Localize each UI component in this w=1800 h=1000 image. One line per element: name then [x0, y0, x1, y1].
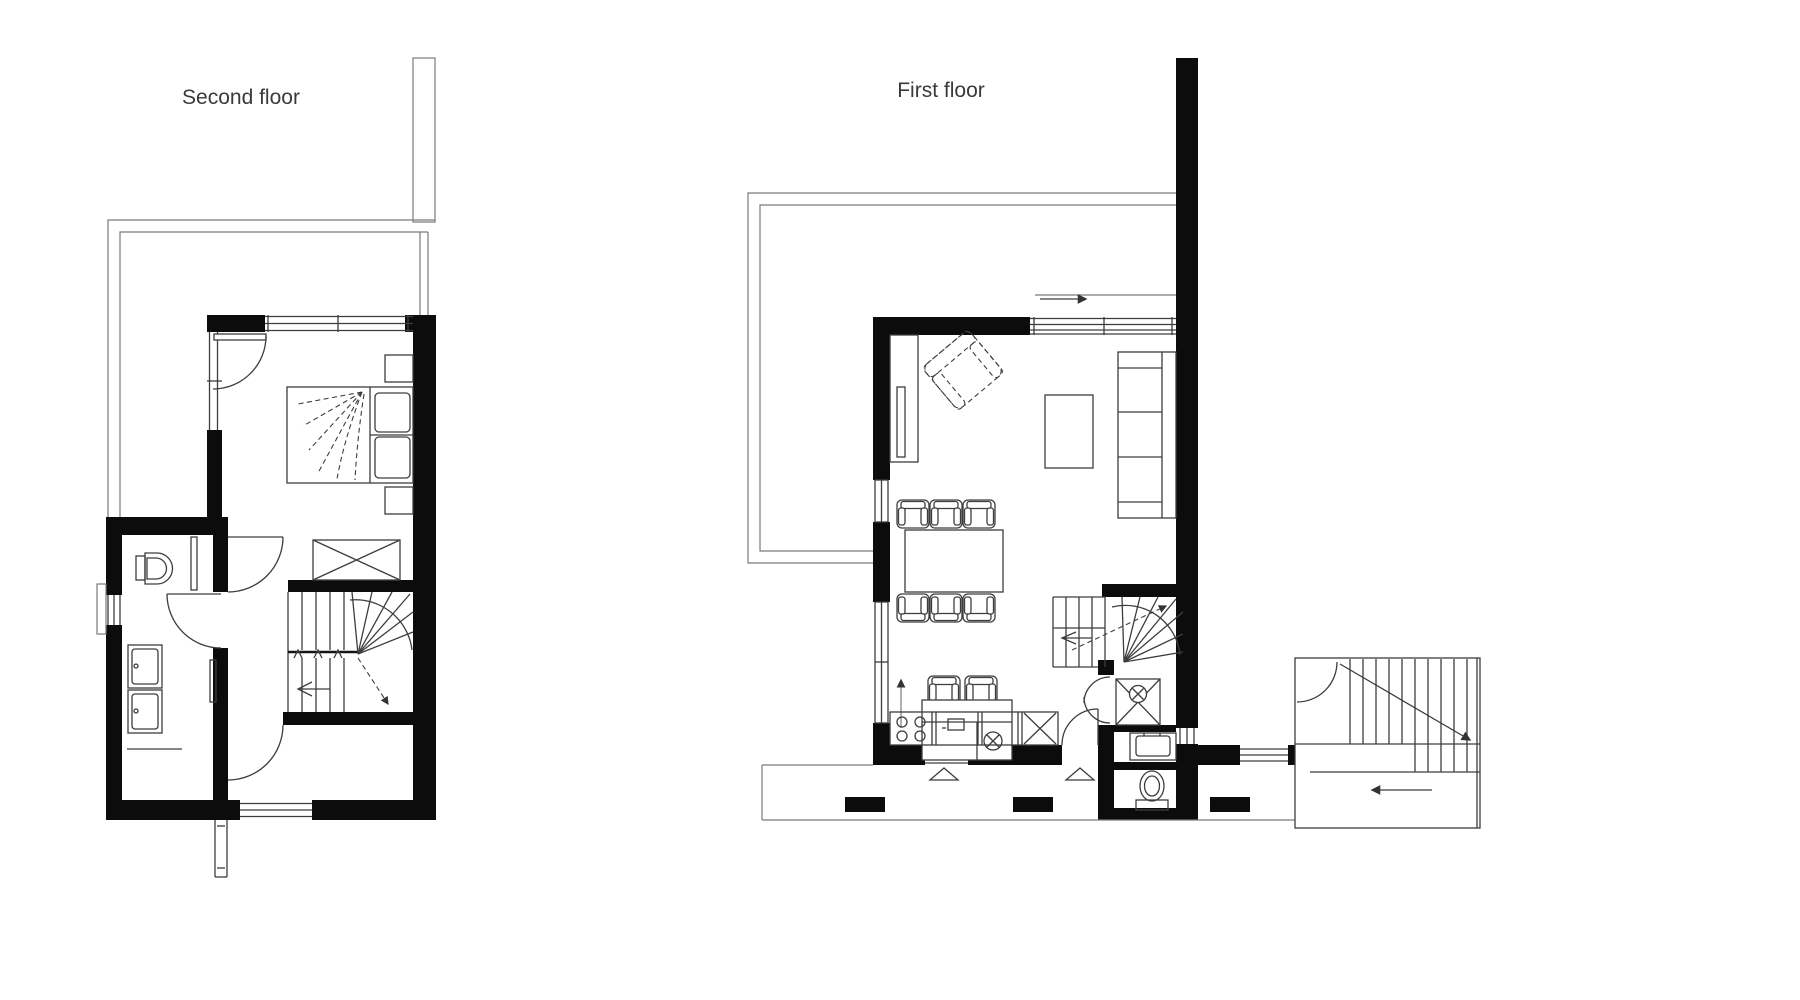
pillow: [375, 393, 410, 432]
dining-chair: [897, 500, 929, 528]
living-room-top-window: [1030, 295, 1176, 335]
terrace-outline: [108, 220, 435, 518]
winder-treads: [1112, 597, 1183, 662]
stair-direction-arrow: [298, 658, 388, 704]
wardrobe-cross: [313, 540, 400, 580]
bedroom: [210, 355, 413, 702]
nightstand: [385, 355, 413, 382]
closet: [890, 335, 918, 462]
dining-chair: [963, 594, 995, 622]
duvet-fold-lines: [298, 392, 364, 480]
windows: [97, 315, 413, 877]
bifold-door: [1084, 677, 1110, 723]
double-washbasin-icon: [127, 645, 182, 749]
lower-room-door: [228, 725, 283, 780]
second-floor-label: Second floor: [182, 86, 300, 109]
dining-chair: [963, 500, 995, 528]
dining-table: [905, 530, 1003, 592]
second-floor-plan: [97, 58, 436, 877]
radiator: [897, 387, 905, 457]
first-floor-plan: [748, 58, 1480, 828]
lower-room-window: [240, 804, 312, 817]
living-room: [890, 329, 1176, 518]
lower-flight: [1310, 744, 1480, 790]
pillow: [375, 437, 410, 478]
porch: [762, 765, 1295, 820]
dining-chair: [897, 594, 929, 622]
entrance-triangle: [930, 768, 958, 780]
first-floor-label: First floor: [897, 79, 985, 102]
wc-room: [1136, 771, 1168, 810]
upper-flight: [1295, 659, 1480, 744]
porch-post: [1210, 797, 1250, 812]
washbasin-window: [1180, 728, 1194, 744]
chimney: [413, 58, 435, 222]
dishwasher-cross: [1024, 713, 1056, 744]
entrance-triangle: [1066, 768, 1094, 780]
bedroom-left-window: [207, 332, 222, 430]
porch-post: [845, 797, 885, 812]
winder-staircase: [1053, 597, 1183, 667]
hall-door: [228, 537, 283, 592]
shower-icon: [1116, 679, 1160, 725]
armchair: [922, 329, 1004, 410]
sofa: [1118, 352, 1176, 518]
coffee-table: [1045, 395, 1093, 468]
bathroom-door: [167, 594, 221, 648]
external-staircase: [1295, 658, 1480, 828]
stair-door: [1297, 662, 1337, 702]
winder-treads: [350, 592, 413, 654]
entrance-door: [1062, 709, 1098, 745]
porch-post: [1013, 797, 1053, 812]
dining-chair: [930, 594, 962, 622]
toilet-icon: [1136, 771, 1168, 810]
floorplan-page: Second floor First floor: [0, 0, 1800, 1000]
floorplan-drawing: Second floor First floor: [0, 0, 1800, 1000]
toilet-icon: [136, 553, 173, 584]
winder-staircase: [288, 592, 413, 712]
bedroom-top-window: [265, 315, 413, 332]
partition: [191, 537, 197, 590]
nightstand: [385, 487, 413, 514]
wall-stub-below: [215, 820, 227, 877]
washbasin-icon: [1130, 733, 1176, 760]
walls: [106, 315, 436, 820]
dining-area: [897, 500, 1003, 622]
bottom-wall-window: [1240, 749, 1288, 761]
bathroom: [127, 537, 197, 749]
dining-chair: [930, 500, 962, 528]
